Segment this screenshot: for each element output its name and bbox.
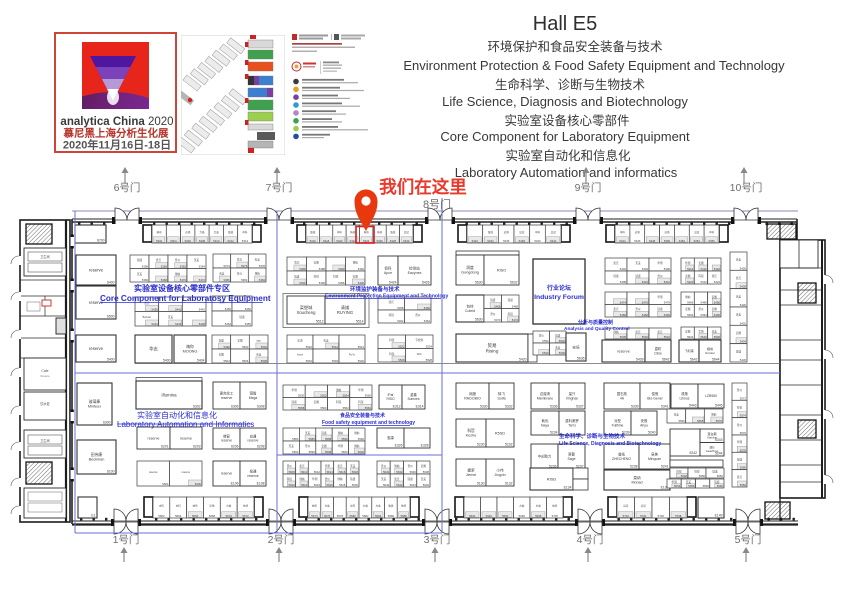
svg-text:ZHECHENG: ZHECHENG	[612, 457, 631, 461]
svg-text:5688: 5688	[400, 514, 407, 518]
svg-text:实验室设备核心零部件专区: 实验室设备核心零部件专区	[134, 283, 230, 293]
svg-text:博纳: 博纳	[685, 295, 691, 299]
svg-text:5584: 5584	[292, 437, 299, 441]
svg-text:佰科: 佰科	[384, 266, 392, 271]
svg-text:reserve: reserve	[221, 396, 232, 400]
svg-text:力晶: 力晶	[519, 504, 525, 508]
svg-text:5662: 5662	[158, 514, 165, 518]
svg-text:瑞盛: 瑞盛	[350, 477, 356, 481]
svg-text:Monad: Monad	[632, 481, 643, 485]
svg-text:6100: 6100	[107, 470, 115, 474]
svg-text:5416: 5416	[700, 267, 707, 271]
svg-text:Life Science, Diagnosis and Bi: Life Science, Diagnosis and Biotechnolog…	[559, 441, 661, 447]
svg-text:reserve: reserve	[247, 474, 258, 478]
svg-text:普仪: 普仪	[539, 334, 545, 338]
svg-text:纳普: 纳普	[312, 504, 318, 508]
svg-text:博纳: 博纳	[299, 477, 305, 481]
svg-text:力晶: 力晶	[199, 230, 205, 234]
svg-text:5445: 5445	[715, 404, 723, 408]
svg-text:致微: 致微	[488, 230, 494, 234]
svg-text:凯氏: 凯氏	[337, 464, 343, 468]
svg-text:Sage: Sage	[568, 457, 576, 461]
svg-text:5444: 5444	[151, 322, 158, 326]
svg-text:安图: 安图	[219, 353, 225, 357]
svg-text:博纳: 博纳	[175, 272, 181, 276]
svg-text:5556: 5556	[365, 394, 372, 398]
svg-text:5576: 5576	[740, 431, 747, 435]
svg-text:5439: 5439	[636, 358, 644, 362]
svg-text:5366: 5366	[142, 278, 149, 282]
svg-text:5642: 5642	[690, 358, 698, 362]
svg-text:5404: 5404	[197, 359, 205, 363]
svg-text:5370: 5370	[180, 278, 187, 282]
svg-text:5380: 5380	[223, 278, 230, 282]
svg-text:4号门: 4号门	[577, 533, 604, 546]
svg-text:凯氏: 凯氏	[299, 464, 305, 468]
svg-text:润度: 润度	[469, 391, 477, 396]
svg-text:致微: 致微	[388, 504, 394, 508]
svg-text:5472: 5472	[512, 318, 519, 322]
svg-text:E328: E328	[421, 444, 429, 448]
svg-text:5522: 5522	[398, 345, 405, 349]
svg-text:纳普: 纳普	[364, 230, 370, 234]
svg-text:6300: 6300	[103, 421, 111, 425]
svg-text:PuYu: PuYu	[349, 353, 356, 357]
svg-text:迈驰: 迈驰	[664, 230, 670, 234]
svg-text:5244: 5244	[715, 452, 723, 456]
svg-text:5462: 5462	[397, 319, 404, 323]
svg-text:E149: E149	[715, 514, 723, 518]
svg-text:5490: 5490	[714, 301, 721, 305]
svg-text:5514: 5514	[358, 345, 365, 349]
svg-text:9号门: 9号门	[575, 181, 602, 194]
svg-text:5356: 5356	[708, 239, 715, 243]
svg-text:5482: 5482	[642, 313, 649, 317]
svg-text:致微: 致微	[390, 230, 396, 234]
svg-text:力晶: 力晶	[536, 504, 542, 508]
svg-text:6400: 6400	[107, 281, 115, 285]
svg-text:5350: 5350	[664, 239, 671, 243]
svg-text:R5SD: R5SD	[495, 431, 505, 435]
svg-text:科锐: 科锐	[389, 338, 395, 342]
svg-text:Tan's: Tan's	[568, 423, 576, 427]
svg-text:力晶: 力晶	[376, 504, 382, 508]
svg-text:5604: 5604	[162, 482, 169, 486]
svg-text:5308: 5308	[199, 239, 206, 243]
svg-text:5538: 5538	[620, 335, 627, 339]
svg-text:5474: 5474	[620, 301, 627, 305]
svg-text:5436: 5436	[740, 358, 747, 362]
svg-text:力晶: 力晶	[226, 504, 232, 508]
svg-text:天美: 天美	[323, 339, 329, 343]
svg-text:Kiosco: Kiosco	[40, 374, 49, 378]
svg-text:5240: 5240	[648, 431, 656, 435]
svg-text:5448: 5448	[199, 322, 206, 326]
svg-text:包材: 包材	[466, 304, 474, 309]
svg-text:5358: 5358	[142, 265, 149, 269]
svg-text:华测: 华测	[685, 261, 691, 265]
svg-text:5620: 5620	[288, 483, 295, 487]
svg-text:纳普: 纳普	[377, 230, 383, 234]
svg-text:华测: 华测	[338, 444, 344, 448]
svg-text:5612: 5612	[314, 470, 321, 474]
svg-text:RISD: RISD	[547, 476, 557, 481]
svg-text:天美: 天美	[289, 444, 295, 448]
svg-text:5678: 5678	[337, 514, 344, 518]
svg-text:E314: E314	[416, 405, 424, 409]
svg-text:5334: 5334	[487, 239, 494, 243]
svg-text:5332: 5332	[505, 405, 513, 409]
svg-text:5452: 5452	[245, 307, 252, 311]
svg-text:E312: E312	[393, 405, 401, 409]
svg-text:reserve: reserve	[248, 439, 259, 443]
svg-text:5428: 5428	[740, 285, 747, 289]
svg-text:reserve: reserve	[89, 268, 104, 273]
svg-text:5242: 5242	[689, 451, 697, 455]
svg-text:5626: 5626	[326, 483, 333, 487]
svg-text:纳普: 纳普	[193, 504, 199, 508]
svg-text:Minquan: Minquan	[648, 457, 661, 461]
svg-text:凯氏: 凯氏	[737, 475, 743, 479]
svg-text:5440: 5440	[175, 308, 182, 312]
svg-text:5606: 5606	[195, 482, 202, 486]
svg-text:凯氏: 凯氏	[294, 261, 300, 265]
svg-text:天美: 天美	[736, 294, 742, 298]
svg-text:科锐: 科锐	[508, 312, 514, 316]
svg-text:E108: E108	[257, 482, 265, 486]
svg-text:5314: 5314	[242, 239, 249, 243]
svg-text:凯氏: 凯氏	[657, 330, 663, 334]
svg-text:5566: 5566	[678, 419, 685, 423]
svg-text:5650: 5650	[699, 474, 706, 478]
svg-text:节想到: 节想到	[415, 338, 423, 342]
svg-text:5542: 5542	[664, 335, 671, 339]
svg-text:5616: 5616	[339, 470, 346, 474]
svg-text:Rising: Rising	[486, 348, 499, 353]
svg-text:5668: 5668	[209, 514, 216, 518]
svg-text:科锐: 科锐	[389, 313, 395, 317]
svg-text:品冠: 品冠	[551, 230, 557, 234]
svg-text:天美: 天美	[194, 258, 200, 262]
svg-text:Fulltime: Fulltime	[612, 423, 624, 427]
svg-text:环境保护和食品安全装备与技术: 环境保护和食品安全装备与技术	[487, 39, 663, 54]
svg-text:中科: 中科	[620, 230, 626, 234]
svg-text:E106: E106	[231, 482, 239, 486]
svg-text:5602: 5602	[358, 450, 365, 454]
svg-text:5638: 5638	[423, 470, 430, 474]
svg-text:2号门: 2号门	[268, 533, 295, 546]
svg-text:5352: 5352	[679, 239, 686, 243]
svg-text:瑞盛: 瑞盛	[239, 315, 245, 319]
svg-text:Sumnes: Sumnes	[407, 397, 419, 401]
svg-text:科锐: 科锐	[698, 274, 704, 278]
svg-text:5582: 5582	[740, 483, 747, 487]
svg-text:瑞盛: 瑞盛	[294, 275, 300, 279]
svg-text:5552: 5552	[320, 394, 327, 398]
svg-text:5394: 5394	[299, 281, 306, 285]
svg-text:分析与质量控制: 分析与质量控制	[578, 319, 613, 326]
svg-text:普仪: 普仪	[737, 423, 743, 427]
svg-text:6302: 6302	[193, 405, 201, 409]
svg-text:5316: 5316	[310, 239, 317, 243]
svg-text:中科: 中科	[535, 230, 541, 234]
svg-text:5312: 5312	[227, 239, 234, 243]
svg-text:瑞盛: 瑞盛	[219, 339, 225, 343]
svg-text:安道: 安道	[297, 339, 303, 343]
svg-text:Apce: Apce	[384, 271, 392, 275]
svg-text:安图: 安图	[736, 331, 742, 335]
svg-text:5443: 5443	[689, 404, 697, 408]
svg-text:Kezhe: Kezhe	[466, 434, 477, 438]
svg-text:凯氏: 凯氏	[389, 300, 395, 304]
svg-text:5406: 5406	[664, 267, 671, 271]
svg-text:5486: 5486	[687, 301, 694, 305]
svg-text:科锐: 科锐	[336, 400, 342, 404]
svg-text:华测: 华测	[312, 477, 318, 481]
svg-text:5364: 5364	[199, 265, 206, 269]
svg-text:科锐: 科锐	[737, 406, 743, 410]
svg-text:检测站: 检测站	[409, 266, 420, 271]
svg-text:天美: 天美	[137, 272, 143, 276]
svg-text:5510: 5510	[306, 345, 313, 349]
svg-text:5306: 5306	[185, 239, 192, 243]
svg-text:5484: 5484	[664, 313, 671, 317]
svg-text:5492: 5492	[687, 313, 694, 317]
svg-text:天美: 天美	[350, 464, 356, 468]
svg-text:5337: 5337	[576, 405, 584, 409]
svg-text:6206: 6206	[231, 445, 239, 449]
svg-text:5304: 5304	[170, 239, 177, 243]
svg-text:飞利浦: 飞利浦	[684, 348, 693, 353]
svg-text:5532: 5532	[559, 339, 566, 343]
svg-text:卫生间: 卫生间	[40, 438, 50, 443]
svg-text:5508: 5508	[261, 359, 268, 363]
svg-text:生命科学、诊断与生物技术: 生命科学、诊断与生物技术	[495, 77, 646, 92]
svg-text:Naya: Naya	[541, 423, 549, 427]
svg-text:5540: 5540	[642, 335, 649, 339]
svg-text:5402: 5402	[620, 267, 627, 271]
svg-text:捷荣: 捷荣	[467, 468, 475, 473]
svg-text:5664: 5664	[175, 514, 182, 518]
svg-text:5426: 5426	[422, 281, 430, 285]
svg-text:5588: 5588	[325, 437, 332, 441]
svg-text:5698: 5698	[535, 514, 542, 518]
svg-text:中创致力: 中创致力	[538, 454, 552, 459]
svg-text:5326: 5326	[376, 239, 383, 243]
svg-text:5686: 5686	[388, 514, 395, 518]
svg-text:品冠: 品冠	[623, 504, 629, 508]
svg-text:纳普: 纳普	[243, 504, 249, 508]
svg-text:Anoe: Anoe	[297, 353, 304, 357]
svg-text:力晶: 力晶	[325, 504, 331, 508]
svg-text:5498: 5498	[223, 345, 230, 349]
svg-text:5684: 5684	[375, 514, 382, 518]
svg-text:5318: 5318	[323, 239, 330, 243]
svg-text:博纳: 博纳	[711, 413, 717, 417]
svg-text:瑞盛: 瑞盛	[736, 349, 742, 353]
svg-text:5648: 5648	[681, 474, 688, 478]
svg-text:5660: 5660	[717, 484, 724, 488]
svg-text:5656: 5656	[688, 484, 695, 488]
svg-text:博纳: 博纳	[354, 431, 360, 435]
svg-text:5478: 5478	[664, 301, 671, 305]
svg-text:Coleid: Coleid	[465, 309, 475, 313]
svg-text:迈驰: 迈驰	[504, 230, 510, 234]
svg-text:5700: 5700	[552, 514, 559, 518]
svg-text:5586: 5586	[309, 437, 316, 441]
svg-text:5418: 5418	[714, 267, 721, 271]
svg-text:5570: 5570	[716, 419, 723, 423]
svg-text:5320: 5320	[336, 239, 343, 243]
svg-text:中科: 中科	[242, 230, 248, 234]
svg-text:瑞盛: 瑞盛	[321, 431, 327, 435]
svg-text:Ahyu: Ahyu	[640, 423, 648, 427]
svg-text:5488: 5488	[700, 301, 707, 305]
svg-text:普仪: 普仪	[325, 477, 331, 481]
svg-text:reserve: reserve	[180, 436, 192, 440]
svg-text:5241: 5241	[661, 465, 669, 469]
svg-text:5372: 5372	[199, 278, 206, 282]
svg-text:我们在这里: 我们在这里	[379, 177, 467, 197]
svg-text:5610: 5610	[301, 470, 308, 474]
svg-text:普仪: 普仪	[305, 444, 311, 448]
svg-text:Gongdong: Gongdong	[461, 271, 479, 275]
svg-text:5392: 5392	[358, 267, 365, 271]
svg-text:Litmus: Litmus	[680, 396, 690, 400]
svg-text:5644: 5644	[712, 358, 720, 362]
svg-text:5514: 5514	[356, 320, 364, 324]
svg-text:5396: 5396	[319, 281, 326, 285]
svg-text:5630: 5630	[352, 483, 359, 487]
svg-text:5630: 5630	[475, 281, 483, 285]
svg-text:5378: 5378	[259, 264, 266, 268]
svg-text:5466: 5466	[494, 305, 501, 309]
svg-text:力晶: 力晶	[363, 504, 369, 508]
svg-text:5702: 5702	[623, 514, 630, 518]
svg-text:5704: 5704	[640, 514, 647, 518]
svg-text:5642: 5642	[662, 358, 670, 362]
svg-text:5130: 5130	[477, 482, 485, 486]
svg-text:5460: 5460	[424, 306, 431, 310]
svg-text:RISO: RISO	[497, 268, 506, 272]
svg-text:5644: 5644	[410, 483, 417, 487]
svg-text:博纳: 博纳	[394, 464, 400, 468]
svg-text:Cafe: Cafe	[41, 369, 48, 373]
svg-text:5410: 5410	[642, 280, 649, 284]
svg-text:安图: 安图	[685, 330, 691, 334]
svg-text:致微: 致微	[228, 230, 234, 234]
svg-text:5424: 5424	[389, 281, 397, 285]
svg-text:5388: 5388	[319, 267, 326, 271]
svg-text:卫生间: 卫生间	[40, 254, 50, 259]
svg-text:品冠: 品冠	[694, 230, 700, 234]
svg-text:天美: 天美	[168, 315, 174, 319]
svg-text:reserve: reserve	[221, 439, 232, 443]
svg-text:5434: 5434	[740, 340, 747, 344]
svg-text:reserve: reserve	[221, 472, 232, 476]
svg-text:5676: 5676	[324, 514, 331, 518]
svg-text:5512: 5512	[316, 320, 324, 324]
svg-text:reserve: reserve	[181, 470, 190, 474]
svg-text:5454: 5454	[225, 322, 232, 326]
svg-text:5682: 5682	[362, 514, 369, 518]
svg-text:科锐: 科锐	[287, 477, 293, 481]
svg-text:普仪: 普仪	[381, 464, 387, 468]
svg-text:5422: 5422	[700, 280, 707, 284]
svg-text:6号门: 6号门	[114, 181, 141, 194]
svg-text:安图: 安图	[421, 464, 427, 468]
svg-text:华测: 华测	[325, 464, 331, 468]
svg-text:天美: 天美	[381, 477, 387, 481]
svg-text:5632: 5632	[383, 470, 390, 474]
svg-text:5568: 5568	[697, 419, 704, 423]
svg-text:天美: 天美	[736, 258, 742, 262]
svg-text:凯氏: 凯氏	[712, 274, 718, 278]
svg-text:5574: 5574	[740, 414, 747, 418]
svg-text:5590: 5590	[341, 437, 348, 441]
svg-text:reserve: reserve	[149, 470, 158, 474]
svg-text:华测: 华测	[698, 330, 704, 334]
svg-text:5442: 5442	[199, 308, 206, 312]
svg-text:安培: 安培	[572, 344, 580, 349]
svg-text:安图: 安图	[685, 274, 691, 278]
svg-text:5470: 5470	[494, 318, 501, 322]
svg-text:天美: 天美	[555, 346, 561, 350]
svg-text:Cline: Cline	[654, 351, 662, 355]
svg-text:5560: 5560	[320, 406, 327, 410]
svg-text:6500: 6500	[107, 315, 115, 319]
svg-text:安图: 安图	[237, 339, 243, 343]
svg-text:凯氏: 凯氏	[635, 330, 641, 334]
svg-text:5346: 5346	[634, 239, 641, 243]
svg-text:5404: 5404	[642, 267, 649, 271]
svg-text:5330: 5330	[403, 239, 410, 243]
svg-text:品冠: 品冠	[404, 230, 410, 234]
svg-text:凯氏: 凯氏	[394, 477, 400, 481]
svg-text:普仪: 普仪	[287, 464, 293, 468]
svg-text:普仪: 普仪	[175, 258, 181, 262]
svg-text:5692: 5692	[486, 514, 493, 518]
svg-text:5496: 5496	[714, 313, 721, 317]
svg-text:5438: 5438	[151, 308, 158, 312]
svg-text:瑞盛: 瑞盛	[555, 334, 561, 338]
svg-text:5558: 5558	[298, 406, 305, 410]
svg-text:环境监护装备与技术: 环境监护装备与技术	[350, 285, 400, 293]
svg-text:Industry Forum: Industry Forum	[534, 294, 584, 301]
svg-text:5446: 5446	[175, 322, 182, 326]
svg-text:纳普: 纳普	[350, 230, 356, 234]
svg-text:华测: 华测	[737, 440, 743, 444]
svg-text:瑞盛: 瑞盛	[635, 274, 641, 278]
svg-text:5636: 5636	[577, 357, 585, 361]
svg-text:Illumina: Illumina	[161, 393, 177, 398]
svg-text:5332: 5332	[472, 239, 479, 243]
svg-text:5328: 5328	[390, 239, 397, 243]
svg-text:瑞盛: 瑞盛	[613, 274, 619, 278]
svg-text:4A: 4A	[620, 396, 625, 400]
svg-text:RUYING: RUYING	[337, 310, 353, 315]
svg-text:5544: 5544	[687, 335, 694, 339]
svg-text:纳普: 纳普	[552, 504, 558, 508]
svg-text:行业论坛: 行业论坛	[546, 284, 571, 292]
svg-text:RADOBIO: RADOBIO	[464, 397, 481, 401]
svg-text:小伟: 小伟	[496, 468, 504, 473]
svg-text:5592: 5592	[358, 437, 365, 441]
svg-text:中科: 中科	[337, 230, 343, 234]
svg-text:5336: 5336	[503, 239, 510, 243]
svg-text:瑞盛: 瑞盛	[292, 400, 298, 404]
svg-text:Life Science, Diagnosis and Bi: Life Science, Diagnosis and Biotechnolog…	[442, 94, 688, 109]
